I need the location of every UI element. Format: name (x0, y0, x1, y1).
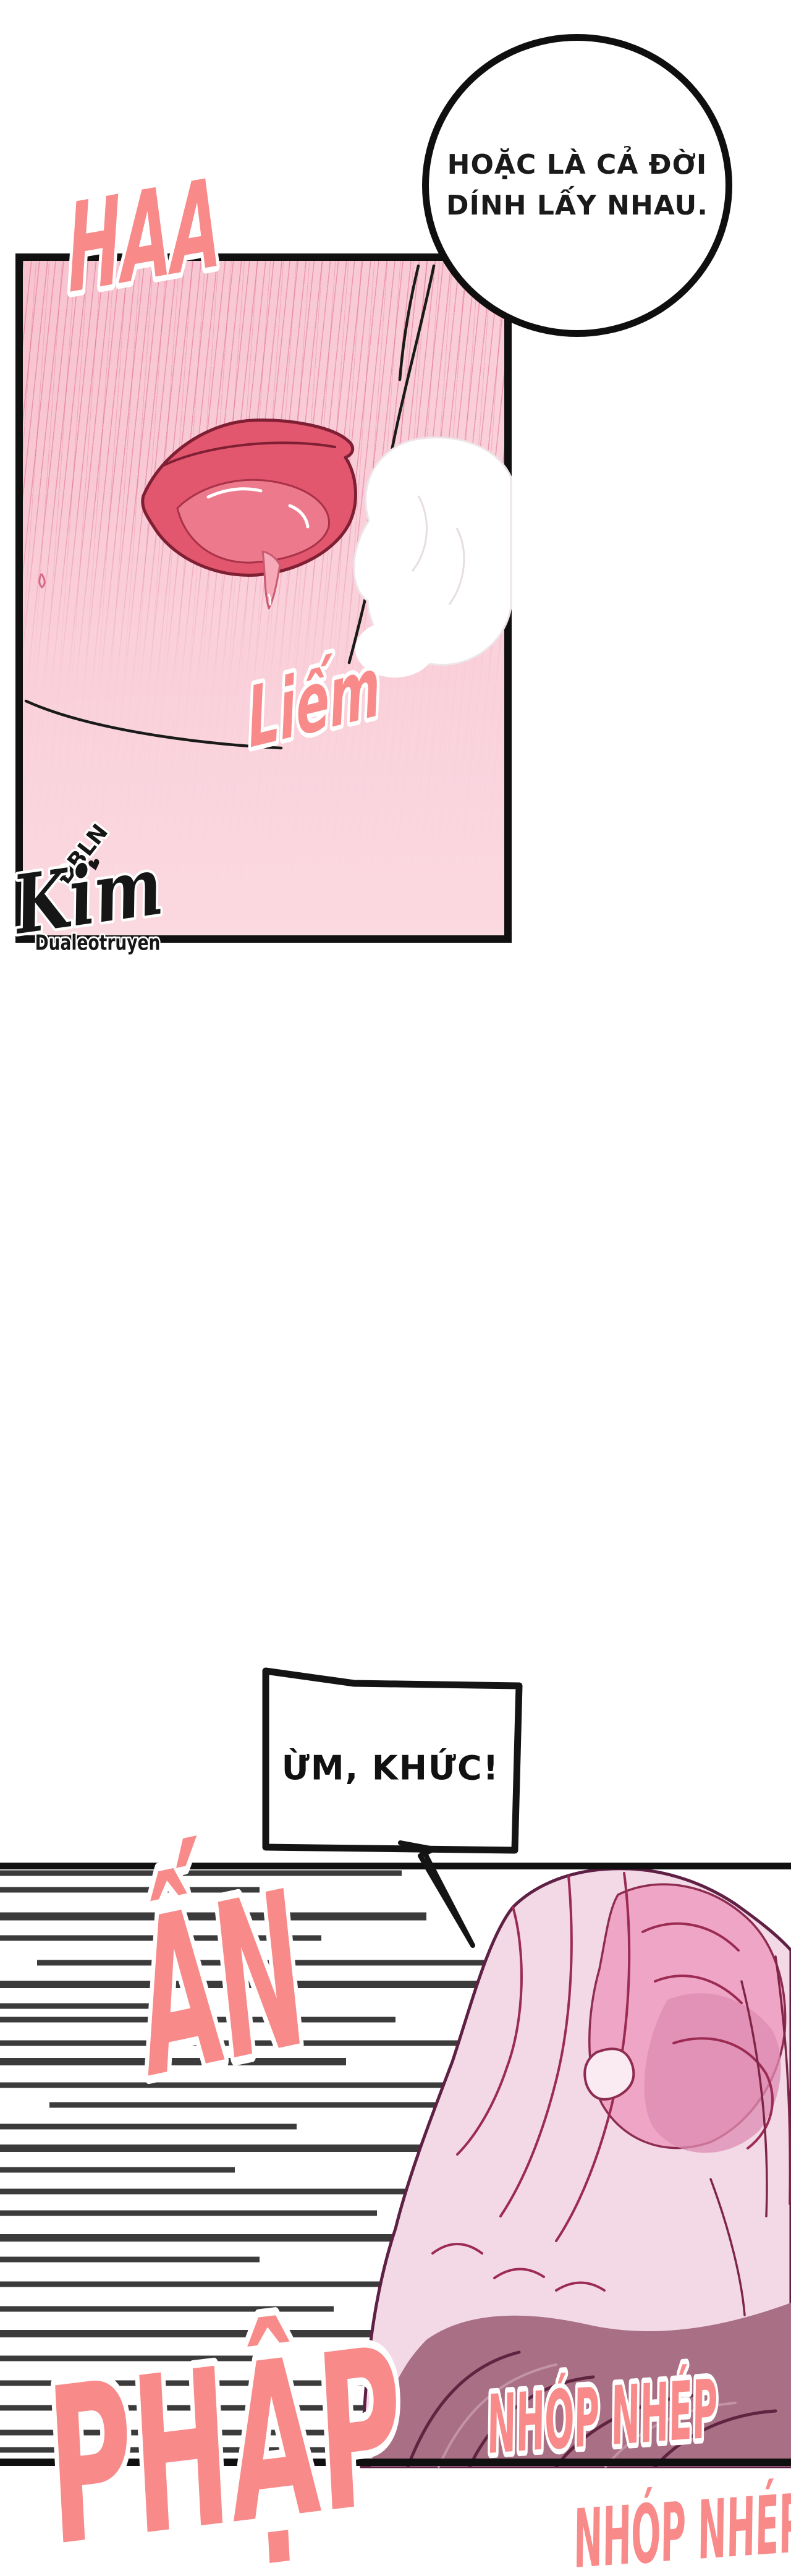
speech-box-2-text: ỪM, KHỨC! (282, 1749, 500, 1788)
comic-page: HAA Liếm ĐBLN Kim ♥ Dualeotruyen HOẶC LÀ… (0, 0, 791, 2576)
sfx-phap-text: PHẬP (42, 2298, 408, 2576)
sfx-haa: HAA (53, 158, 238, 325)
sweat-droplet (40, 574, 45, 587)
speech-bubble-1: HOẶC LÀ CẢ ĐỜI DÍNH LẤY NHAU. (422, 34, 732, 337)
speech-box-2: ỪM, KHỨC! (260, 1663, 556, 1960)
speech-bubble-1-line-2: DÍNH LẤY NHAU. (446, 185, 708, 226)
sfx-liem: Liếm (253, 631, 377, 779)
speech-bubble-1-line-1: HOẶC LÀ CẢ ĐỜI (447, 145, 708, 185)
drool-drip (263, 551, 280, 608)
speech-box-2-tail (400, 1843, 473, 1945)
sfx-nhop-nhep-2-text: NHÓP NHÉP (570, 2476, 791, 2576)
sfx-haa-text: HAA (65, 152, 223, 321)
mouth-illustration (143, 420, 356, 608)
sfx-nhop-nhep-1: NHÓP NHÉP (494, 2355, 717, 2479)
watermark: ĐBLN Kim ♥ Dualeotruyen (15, 822, 164, 964)
sfx-nhop-nhep-2: NHÓP NHÉP (575, 2467, 791, 2576)
steam-puff (354, 438, 511, 678)
sfx-phap: PHẬP (59, 2275, 392, 2576)
sfx-nhop-nhep-1-text: NHÓP NHÉP (484, 2362, 721, 2472)
sfx-liem-text: Liếm (245, 639, 384, 768)
watermark-site-name: Dualeotruyen (35, 931, 161, 955)
